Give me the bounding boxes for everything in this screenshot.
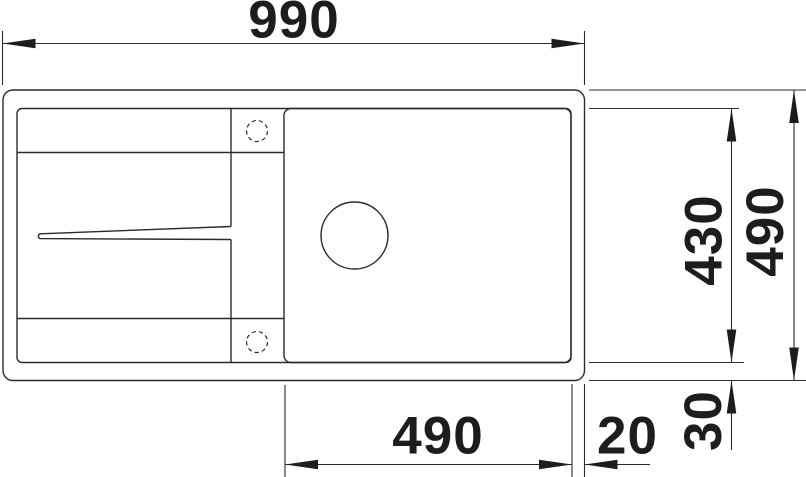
svg-text:490: 490: [392, 407, 483, 466]
svg-text:30: 30: [674, 390, 733, 451]
svg-text:490: 490: [736, 185, 795, 276]
svg-text:430: 430: [675, 194, 734, 285]
svg-text:20: 20: [597, 407, 658, 466]
svg-text:990: 990: [248, 0, 339, 50]
